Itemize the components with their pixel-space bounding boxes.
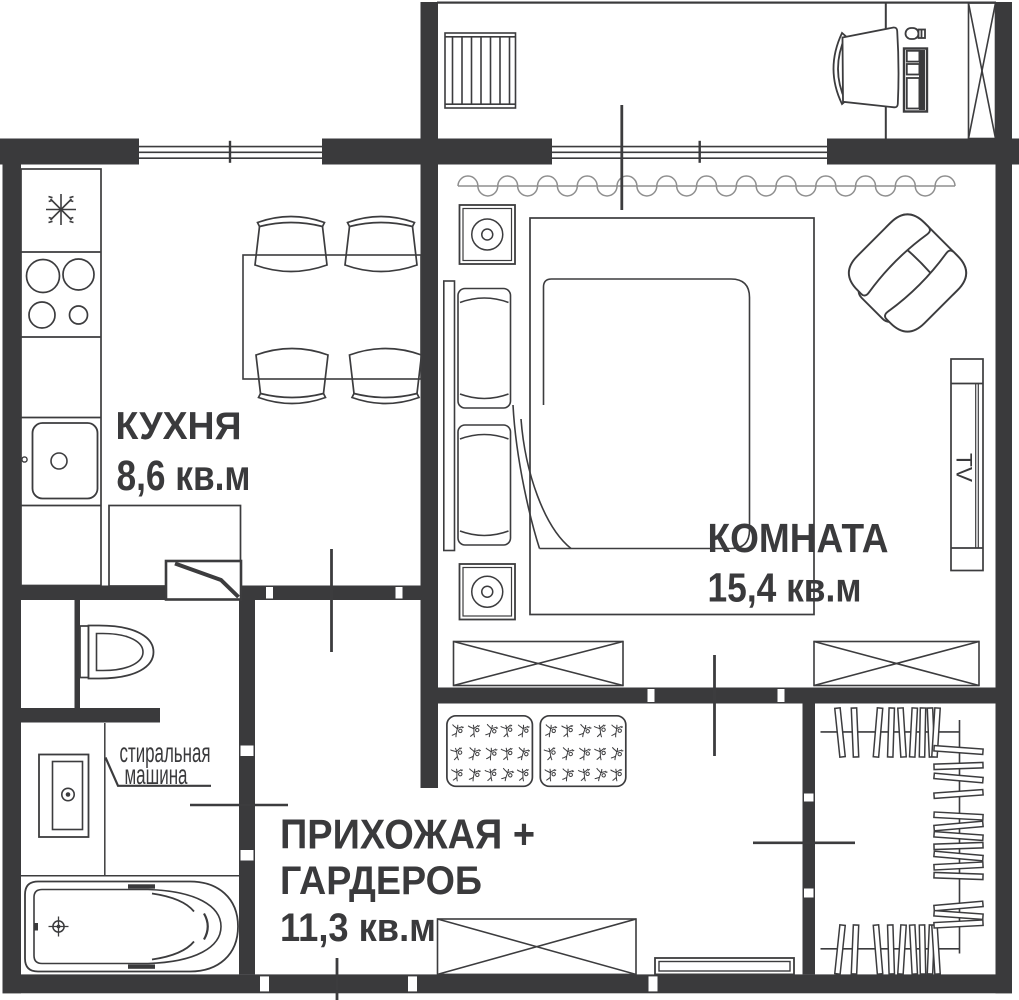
svg-text:8,6 кв.м: 8,6 кв.м	[117, 452, 251, 500]
svg-text:машина: машина	[125, 759, 188, 790]
svg-text:TV: TV	[952, 453, 977, 482]
svg-text:ПРИХОЖАЯ +: ПРИХОЖАЯ +	[280, 810, 535, 857]
svg-text:11,3 кв.м: 11,3 кв.м	[280, 906, 436, 950]
svg-text:КОМНАТА: КОМНАТА	[708, 515, 889, 561]
svg-text:15,4 кв.м: 15,4 кв.м	[708, 564, 862, 610]
svg-text:КУХНЯ: КУХНЯ	[116, 405, 242, 448]
svg-text:ГАРДЕРОБ: ГАРДЕРОБ	[280, 859, 482, 903]
